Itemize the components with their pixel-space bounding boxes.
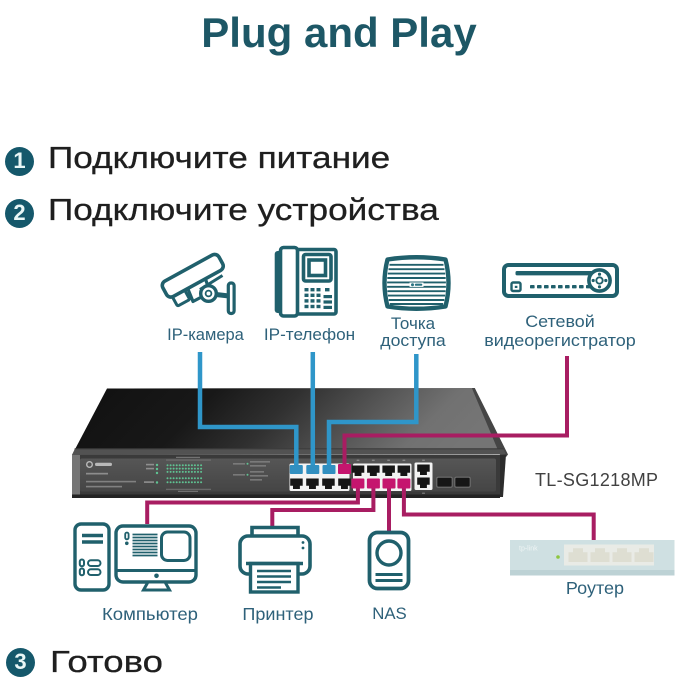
svg-text:tp-link: tp-link bbox=[519, 546, 538, 553]
